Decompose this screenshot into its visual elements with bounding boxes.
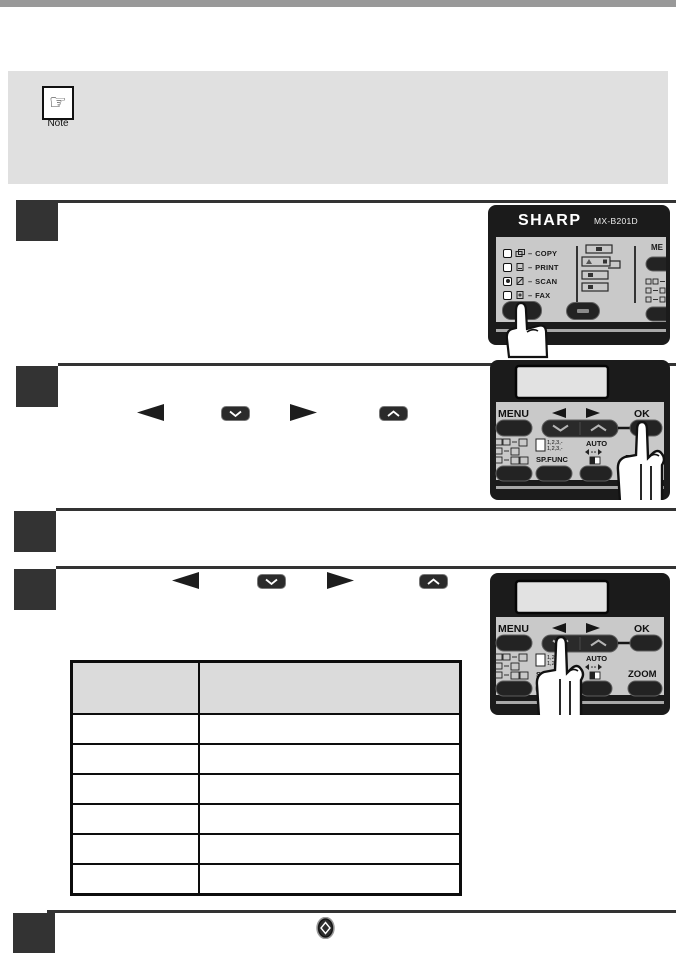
down-key-icon: [257, 574, 286, 589]
pointing-hand-icon: ☞: [49, 93, 67, 113]
right-key-column-partial: [640, 255, 666, 322]
start-key-icon: [316, 917, 335, 939]
auto-label: AUTO: [586, 439, 607, 448]
down-key-icon: [221, 406, 250, 421]
display-screen: [516, 366, 608, 398]
table-cell: [199, 744, 461, 774]
sp-func-key: [536, 466, 572, 481]
table-cell: [72, 804, 199, 834]
zoom-key: [628, 681, 662, 696]
note-box: ☞ Note: [8, 71, 668, 184]
mode-label: SCAN: [535, 277, 557, 286]
panel-divider: [634, 246, 636, 303]
step-number-block: [14, 569, 56, 610]
copy-mode-key: [496, 466, 532, 481]
sort-icon: 1,2,3,- 1,2,3,-: [536, 439, 563, 452]
model-label: MX-B201D: [594, 216, 638, 226]
zoom-label: ZOOM: [628, 669, 657, 680]
up-key-icon: [379, 406, 408, 421]
table-row: [72, 864, 461, 895]
menu-label-partial: ME: [651, 243, 663, 252]
mode-separator: –: [528, 277, 532, 286]
up-key-icon: [419, 574, 448, 589]
step-number-block: [16, 200, 58, 241]
table-cell: [72, 834, 199, 864]
table-header-row: [72, 662, 461, 715]
display-screen: [516, 581, 608, 613]
brand-logo: SHARP: [518, 212, 582, 230]
mode-row-print: – PRINT: [503, 260, 559, 274]
page-header-bar: [0, 0, 676, 7]
note-icon: ☞: [42, 86, 74, 120]
control-panel-image-down-key: MENU OK 1,2,3,- 1,2,3,- SP.FUNC AUTO ZOO…: [490, 573, 670, 715]
clear-key: [566, 302, 600, 320]
mode-label: FAX: [535, 291, 550, 300]
left-arrow-icon: [172, 572, 199, 589]
step-divider-line: [56, 566, 676, 569]
table-row: [72, 834, 461, 864]
table-cell: [72, 864, 199, 895]
step-divider-line: [56, 508, 676, 511]
left-arrow-icon: [137, 404, 164, 421]
options-table: [70, 660, 462, 896]
right-arrow-icon: [327, 572, 354, 589]
table-cell: [199, 804, 461, 834]
control-panel-image-mode-select: SHARP MX-B201D – COPY – PRINT: [488, 205, 670, 345]
ok-key-label: OK: [634, 623, 650, 635]
note-label: Note: [32, 118, 84, 129]
menu-key: [496, 420, 532, 436]
table-cell: [199, 714, 461, 744]
mode-row-fax: – FAX: [503, 288, 559, 302]
table-cell: [72, 714, 199, 744]
mode-separator: –: [528, 249, 532, 258]
fax-icon: [515, 291, 525, 300]
step-number-block: [13, 913, 55, 953]
copy-mode-key: [496, 681, 532, 696]
right-arrow-icon: [290, 404, 317, 421]
table-cell: [199, 864, 461, 895]
panel-header: SHARP MX-B201D: [488, 205, 670, 237]
menu-key-label: MENU: [498, 408, 529, 420]
panel-divider: [576, 246, 578, 303]
mode-separator: –: [528, 263, 532, 272]
mode-separator: –: [528, 291, 532, 300]
mode-label: PRINT: [535, 263, 559, 272]
table-cell: [199, 774, 461, 804]
pointing-finger: [504, 301, 564, 359]
control-panel-image-ok-key: MENU OK 1,2,3,- 1,2,3,- SP.FUNC AUTO Z M: [490, 360, 670, 500]
ok-key-label: OK: [634, 408, 650, 420]
exposure-key: [580, 466, 612, 481]
mode-row-copy: – COPY: [503, 246, 559, 260]
table-row: [72, 744, 461, 774]
mode-indicator-list: – COPY – PRINT – SCAN: [503, 246, 559, 302]
table-cell: [72, 744, 199, 774]
exposure-key: [580, 681, 612, 696]
menu-key-label: MENU: [498, 623, 529, 635]
sp-func-label: SP.FUNC: [536, 455, 569, 464]
copy-led-icon: [503, 249, 512, 258]
table-cell: [199, 834, 461, 864]
step-number-block: [16, 366, 58, 407]
mode-row-scan: – SCAN: [503, 274, 559, 288]
step-number-block: [14, 511, 56, 552]
manual-page: ☞ Note SHARP MX-B201D – COPY –: [0, 0, 676, 953]
machine-status-diagram: [580, 243, 630, 299]
svg-text:1,2,3,-: 1,2,3,-: [547, 446, 563, 452]
scan-icon: [515, 277, 525, 286]
print-led-icon: [503, 263, 512, 272]
scan-led-icon-active: [503, 277, 512, 286]
fax-led-icon: [503, 291, 512, 300]
step-divider-line: [47, 910, 676, 913]
table-row: [72, 804, 461, 834]
auto-label: AUTO: [586, 654, 607, 663]
mode-label: COPY: [535, 249, 557, 258]
table-row: [72, 774, 461, 804]
print-icon: [515, 263, 525, 272]
copy-icon: [515, 249, 525, 258]
ok-key: [630, 635, 662, 651]
table-row: [72, 714, 461, 744]
table-header-cell: [199, 662, 461, 715]
step-divider-line: [58, 200, 676, 203]
table-header-cell: [72, 662, 199, 715]
table-cell: [72, 774, 199, 804]
menu-key: [496, 635, 532, 651]
